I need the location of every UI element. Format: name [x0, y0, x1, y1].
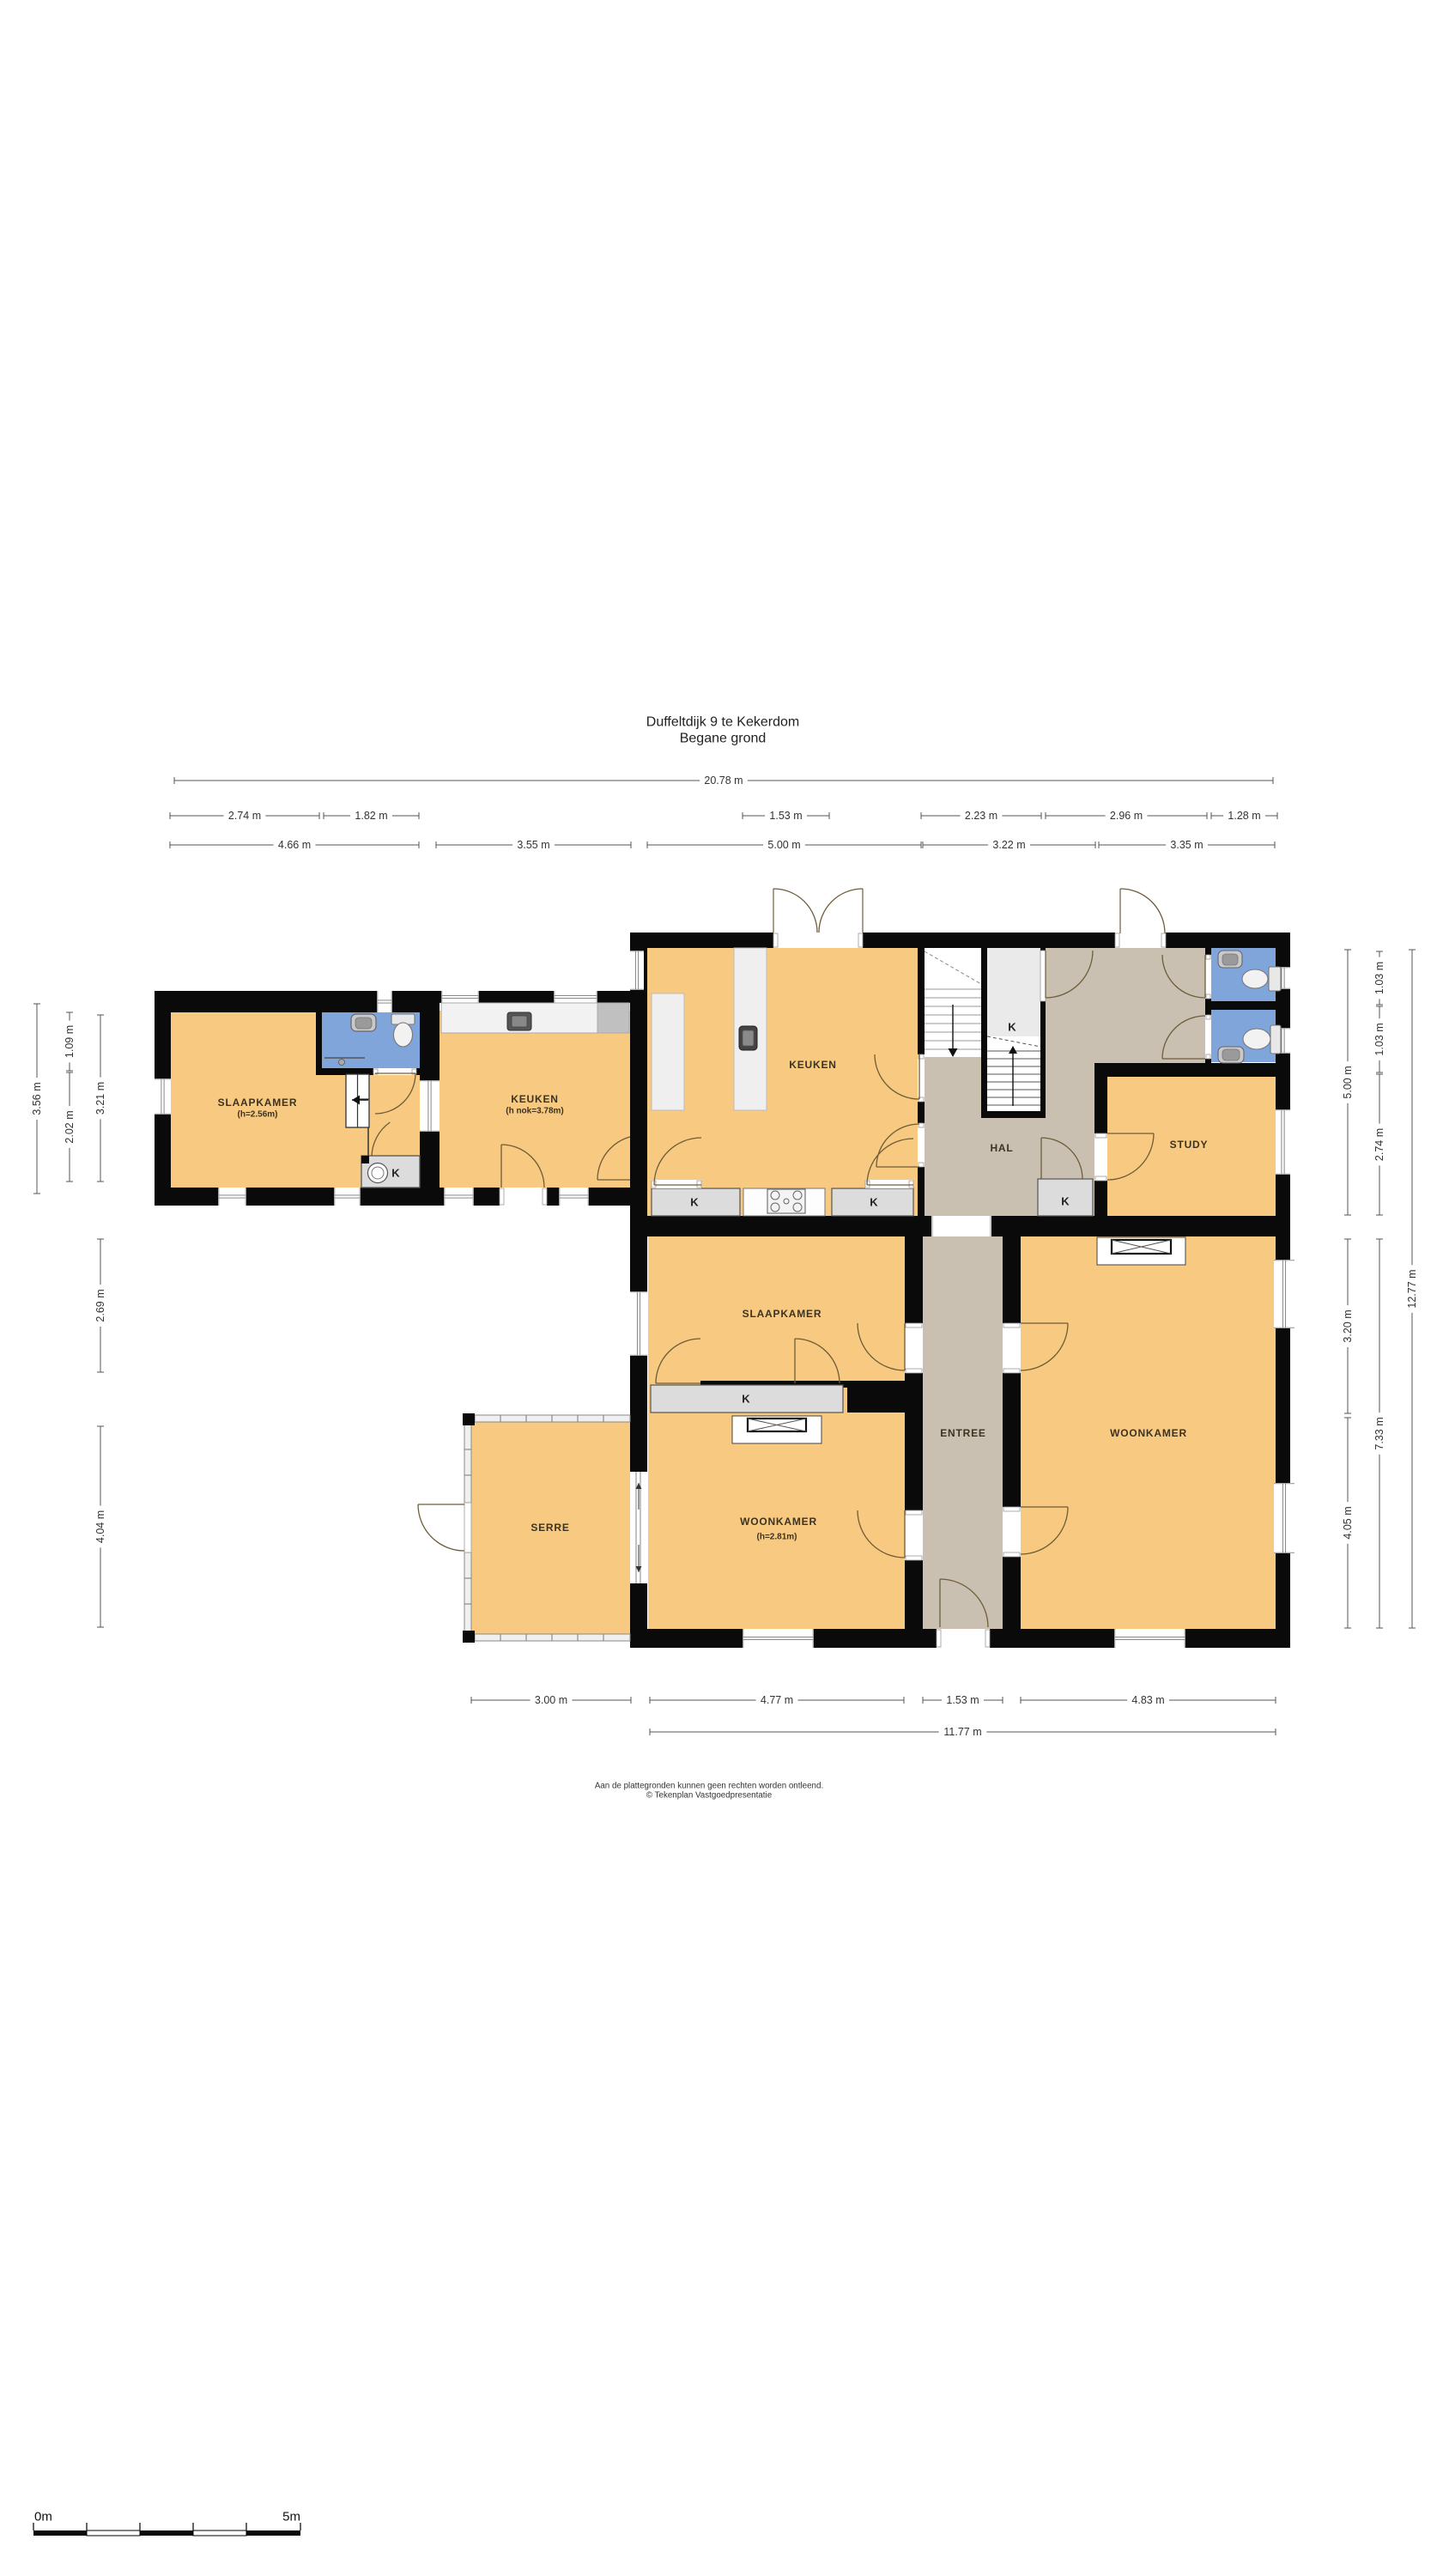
svg-text:3.35 m: 3.35 m: [1170, 839, 1203, 851]
svg-text:3.20 m: 3.20 m: [1342, 1309, 1354, 1342]
svg-text:20.78 m: 20.78 m: [704, 775, 743, 787]
svg-text:3.22 m: 3.22 m: [992, 839, 1025, 851]
svg-text:© Tekenplan Vastgoedpresentati: © Tekenplan Vastgoedpresentatie: [646, 1791, 773, 1801]
svg-text:K: K: [391, 1167, 400, 1180]
svg-text:Begane grond: Begane grond: [680, 732, 767, 746]
svg-text:5.00 m: 5.00 m: [1342, 1066, 1354, 1098]
svg-text:(h nok=3.78m): (h nok=3.78m): [506, 1107, 564, 1116]
svg-text:2.96 m: 2.96 m: [1110, 810, 1143, 822]
svg-text:2.74 m: 2.74 m: [1373, 1128, 1385, 1161]
svg-text:ENTREE: ENTREE: [940, 1427, 985, 1439]
svg-text:3.55 m: 3.55 m: [517, 839, 549, 851]
svg-text:1.53 m: 1.53 m: [946, 1694, 979, 1706]
svg-text:12.77 m: 12.77 m: [1406, 1269, 1418, 1308]
svg-text:3.21 m: 3.21 m: [94, 1082, 106, 1115]
svg-text:K: K: [690, 1196, 699, 1209]
svg-text:11.77 m: 11.77 m: [943, 1726, 981, 1738]
svg-text:3.00 m: 3.00 m: [535, 1694, 567, 1706]
svg-text:2.23 m: 2.23 m: [965, 810, 997, 822]
svg-text:0m: 0m: [34, 2510, 52, 2524]
svg-text:KEUKEN: KEUKEN: [789, 1059, 836, 1071]
svg-text:2.69 m: 2.69 m: [94, 1289, 106, 1321]
svg-text:4.83 m: 4.83 m: [1131, 1694, 1164, 1706]
svg-text:(h=2.56m): (h=2.56m): [238, 1110, 278, 1120]
svg-text:SERRE: SERRE: [530, 1522, 569, 1534]
svg-text:3.56 m: 3.56 m: [31, 1082, 43, 1115]
svg-text:STUDY: STUDY: [1170, 1139, 1209, 1151]
svg-text:Duffeltdijk 9 te Kekerdom: Duffeltdijk 9 te Kekerdom: [646, 715, 799, 730]
svg-text:Aan de plattegronden kunnen ge: Aan de plattegronden kunnen geen rechten…: [595, 1782, 823, 1791]
svg-text:K: K: [742, 1393, 750, 1406]
svg-text:HAL: HAL: [990, 1142, 1013, 1154]
svg-text:4.05 m: 4.05 m: [1342, 1506, 1354, 1539]
svg-text:1.03 m: 1.03 m: [1373, 962, 1385, 994]
svg-text:2.74 m: 2.74 m: [228, 810, 261, 822]
svg-text:K: K: [1061, 1195, 1070, 1208]
svg-text:2.02 m: 2.02 m: [64, 1110, 76, 1143]
svg-text:1.03 m: 1.03 m: [1373, 1023, 1385, 1055]
svg-text:SLAAPKAMER: SLAAPKAMER: [218, 1097, 298, 1109]
svg-text:K: K: [1008, 1021, 1016, 1034]
svg-text:(h=2.81m): (h=2.81m): [757, 1533, 797, 1542]
svg-text:WOONKAMER: WOONKAMER: [1110, 1427, 1187, 1439]
svg-text:4.66 m: 4.66 m: [278, 839, 311, 851]
svg-text:1.53 m: 1.53 m: [769, 810, 802, 822]
svg-text:SLAAPKAMER: SLAAPKAMER: [743, 1308, 822, 1320]
svg-text:4.04 m: 4.04 m: [94, 1510, 106, 1543]
svg-text:KEUKEN: KEUKEN: [511, 1093, 558, 1105]
svg-text:7.33 m: 7.33 m: [1373, 1417, 1385, 1449]
svg-text:WOONKAMER: WOONKAMER: [740, 1516, 817, 1528]
svg-text:4.77 m: 4.77 m: [761, 1694, 793, 1706]
svg-text:1.28 m: 1.28 m: [1228, 810, 1260, 822]
svg-text:1.82 m: 1.82 m: [355, 810, 387, 822]
svg-text:1.09 m: 1.09 m: [64, 1025, 76, 1058]
svg-text:5.00 m: 5.00 m: [767, 839, 800, 851]
svg-text:5m: 5m: [282, 2510, 300, 2524]
svg-text:K: K: [870, 1196, 878, 1209]
